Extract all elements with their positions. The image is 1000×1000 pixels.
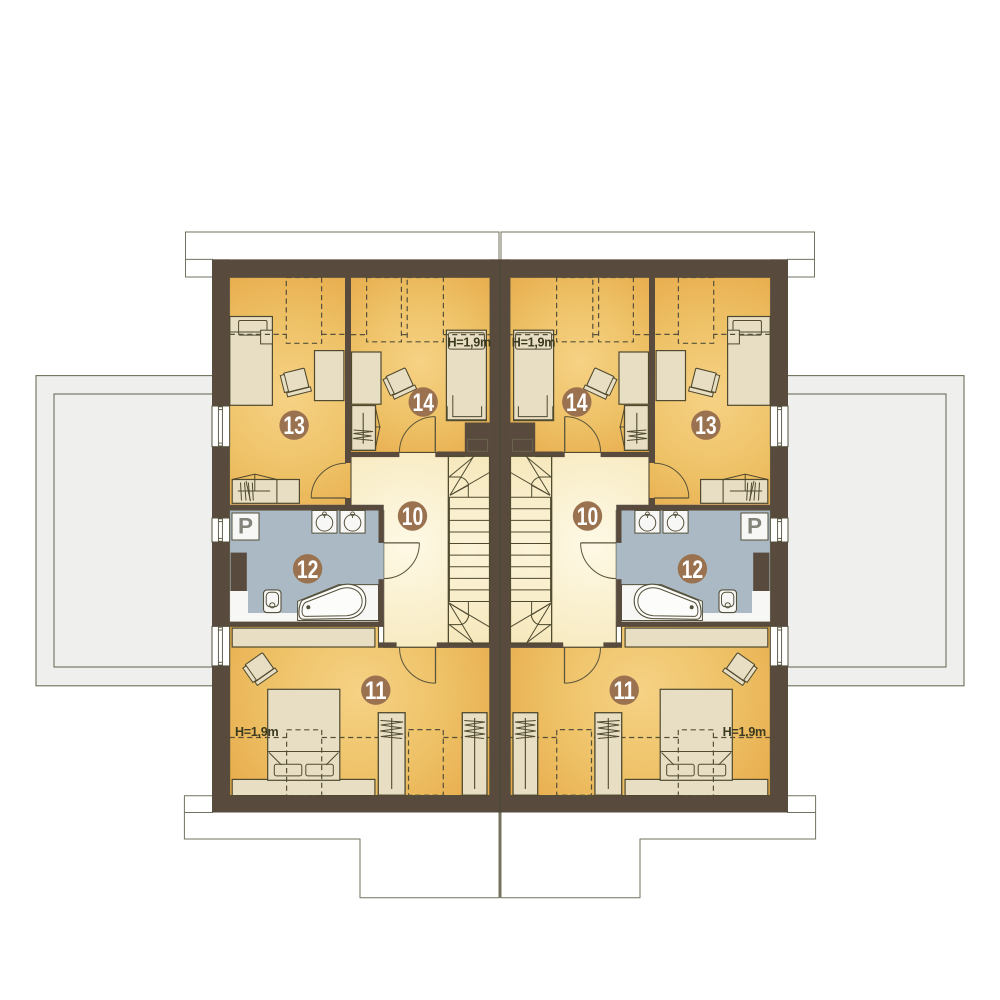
svg-text:13: 13: [695, 412, 717, 440]
svg-text:10: 10: [402, 503, 424, 531]
svg-text:H=1,9m: H=1,9m: [723, 725, 766, 739]
svg-text:10: 10: [577, 503, 599, 531]
svg-text:14: 14: [412, 389, 434, 417]
svg-text:11: 11: [613, 677, 635, 705]
svg-text:14: 14: [566, 389, 588, 417]
svg-text:P: P: [747, 514, 762, 539]
svg-text:12: 12: [297, 556, 319, 584]
svg-text:H=1,9m: H=1,9m: [512, 336, 555, 350]
svg-text:12: 12: [682, 556, 704, 584]
svg-text:13: 13: [283, 412, 305, 440]
svg-text:H=1,9m: H=1,9m: [235, 725, 278, 739]
svg-text:P: P: [238, 514, 253, 539]
svg-text:11: 11: [365, 677, 387, 705]
svg-text:H=1,9m: H=1,9m: [448, 336, 491, 350]
